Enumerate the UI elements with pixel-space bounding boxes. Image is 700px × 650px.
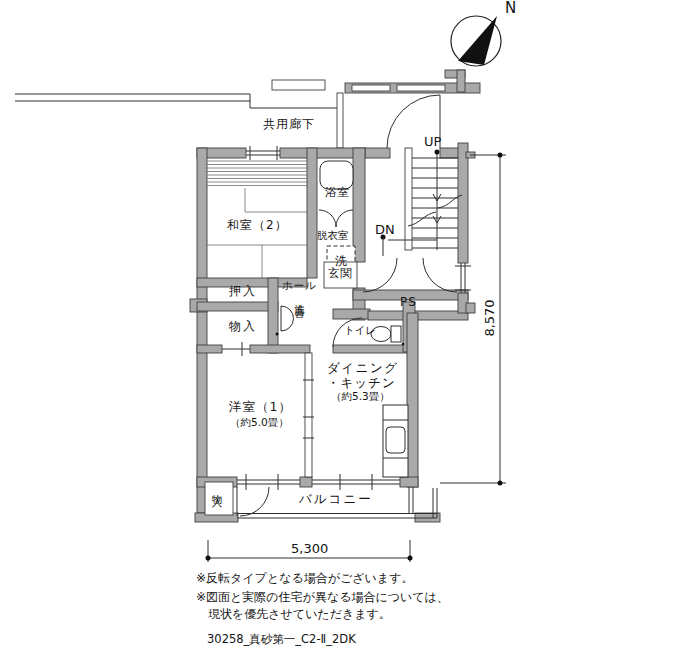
label-hall: ホール bbox=[282, 280, 317, 291]
label-storage: 物入 bbox=[229, 320, 257, 332]
staircase bbox=[381, 148, 463, 256]
label-washstand: 洗面台 bbox=[294, 296, 304, 302]
note-line-2: ※図面と実際の住宅が異なる場合については、 bbox=[196, 591, 449, 603]
bath-door-right bbox=[336, 210, 353, 227]
label-western-room: 洋室（1） bbox=[229, 401, 292, 414]
label-pipe-space: PS bbox=[400, 296, 417, 308]
label-common-corridor: 共用廊下 bbox=[263, 118, 315, 130]
dimension-width: 5,300 bbox=[291, 542, 328, 555]
up-marker bbox=[435, 150, 440, 155]
label-balcony-storage: 物入 bbox=[212, 486, 223, 490]
kitchen-counter-icon bbox=[383, 405, 408, 477]
label-balcony: バルコニー bbox=[299, 493, 373, 506]
label-western-room-size: （約5.0畳） bbox=[230, 417, 289, 428]
note-line-3: 現状を優先させていただきます。 bbox=[208, 608, 391, 620]
compass-icon bbox=[451, 16, 501, 66]
floor-plan-canvas: N 共用廊下 UP DN 浴室 和室（2） 脱衣室 洗 玄関 PS トイレ 押入… bbox=[0, 0, 700, 650]
label-japanese-room: 和室（2） bbox=[227, 219, 288, 231]
sliding-partition bbox=[303, 353, 314, 477]
balcony-closet-door bbox=[237, 487, 269, 516]
north-label: N bbox=[505, 1, 516, 16]
plan-id: 30258_真砂第一_C2-Ⅱ_2DK bbox=[207, 634, 356, 646]
label-toilet: トイレ bbox=[344, 325, 376, 336]
label-bathroom: 浴室 bbox=[325, 187, 350, 199]
corridor-separator bbox=[337, 93, 343, 148]
label-dn: DN bbox=[375, 223, 395, 236]
entrance-door-right bbox=[423, 258, 457, 292]
entrance-door-left bbox=[363, 258, 397, 292]
label-kitchen: ・キッチン bbox=[327, 377, 396, 390]
label-dining: ダイニング bbox=[327, 362, 398, 375]
kitchen-sink-icon bbox=[386, 427, 405, 453]
dimension-height: 8,570 bbox=[483, 299, 496, 336]
corridor-outline bbox=[15, 70, 480, 148]
label-oshiire-closet: 押入 bbox=[229, 285, 257, 297]
label-dressing-room: 脱衣室 bbox=[317, 230, 349, 241]
label-dk-size: （約5.3畳） bbox=[331, 391, 390, 402]
bath-door-left bbox=[319, 210, 336, 227]
label-entrance: 玄関 bbox=[328, 268, 353, 280]
label-up: UP bbox=[424, 135, 441, 148]
note-line-1: ※反転タイプとなる場合がございます。 bbox=[196, 572, 413, 584]
